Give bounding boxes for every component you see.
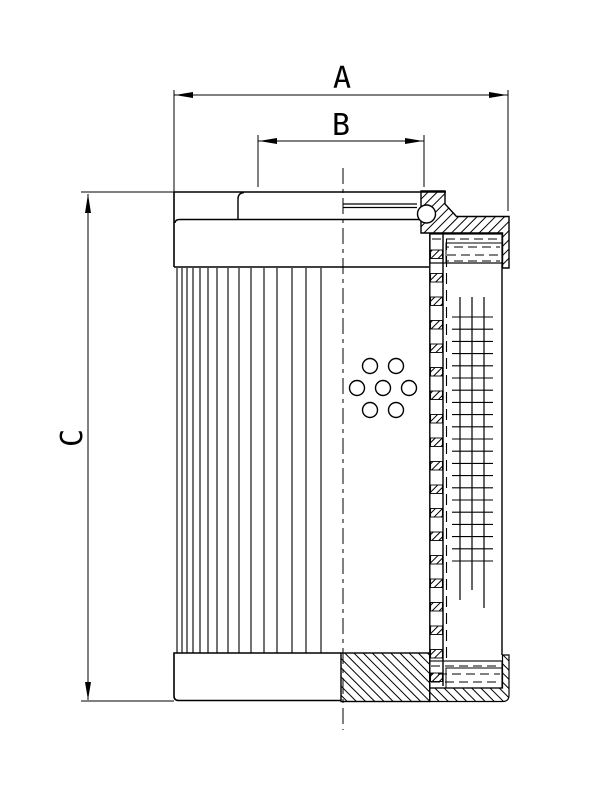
- tube-square: [431, 462, 443, 471]
- dimension-b: B: [258, 108, 424, 187]
- tube-square: [431, 321, 443, 330]
- dim-label-a: A: [333, 61, 351, 96]
- dimension-c: C: [55, 192, 174, 701]
- tube-square: [431, 438, 443, 447]
- tube-square: [431, 673, 443, 682]
- tube-square: [431, 391, 443, 400]
- dim-a-arrow-left-icon: [175, 92, 193, 98]
- perforation-hole: [389, 403, 404, 418]
- collar-bottom-line: [175, 220, 421, 224]
- dim-label-c: C: [55, 429, 90, 447]
- perforation-hole: [363, 359, 378, 374]
- dim-b-arrow-left-icon: [259, 138, 277, 144]
- o-ring: [418, 205, 436, 223]
- collar-step-line: [238, 193, 244, 220]
- tube-square: [431, 368, 443, 377]
- core-tube: [430, 233, 443, 686]
- dim-c-arrow-top-icon: [85, 194, 91, 213]
- tube-square: [431, 344, 443, 353]
- tube-square: [431, 415, 443, 424]
- figure-svg: A B C: [0, 0, 612, 792]
- tube-square: [431, 297, 443, 306]
- dim-label-b: B: [332, 108, 350, 143]
- tube-square: [431, 485, 443, 494]
- perforation-hole: [389, 359, 404, 374]
- tube-square: [431, 509, 443, 518]
- filter-element-left-view: [174, 192, 446, 701]
- dim-b-arrow-right-icon: [405, 138, 423, 144]
- tube-square: [431, 250, 443, 259]
- dim-a-arrow-right-icon: [489, 92, 507, 98]
- bottom-cap-hatched-block: [341, 653, 430, 702]
- tube-square: [431, 579, 443, 588]
- tube-square: [431, 603, 443, 612]
- tube-squares: [431, 250, 443, 682]
- bottom-cap-outline: [174, 653, 341, 701]
- perforation-holes: [350, 359, 417, 418]
- tube-square: [431, 532, 443, 541]
- dim-c-arrow-bottom-icon: [85, 682, 91, 700]
- tube-square: [431, 650, 443, 659]
- media-grid: [452, 297, 493, 608]
- pleats: [177, 268, 321, 653]
- perforation-hole: [363, 403, 378, 418]
- perforation-hole: [402, 381, 417, 396]
- perforation-hole: [350, 381, 365, 396]
- tube-square: [431, 626, 443, 635]
- perforation-hole: [376, 381, 391, 396]
- tube-square: [431, 274, 443, 283]
- tube-square: [431, 556, 443, 565]
- drawing-sheet: A B C: [0, 0, 612, 792]
